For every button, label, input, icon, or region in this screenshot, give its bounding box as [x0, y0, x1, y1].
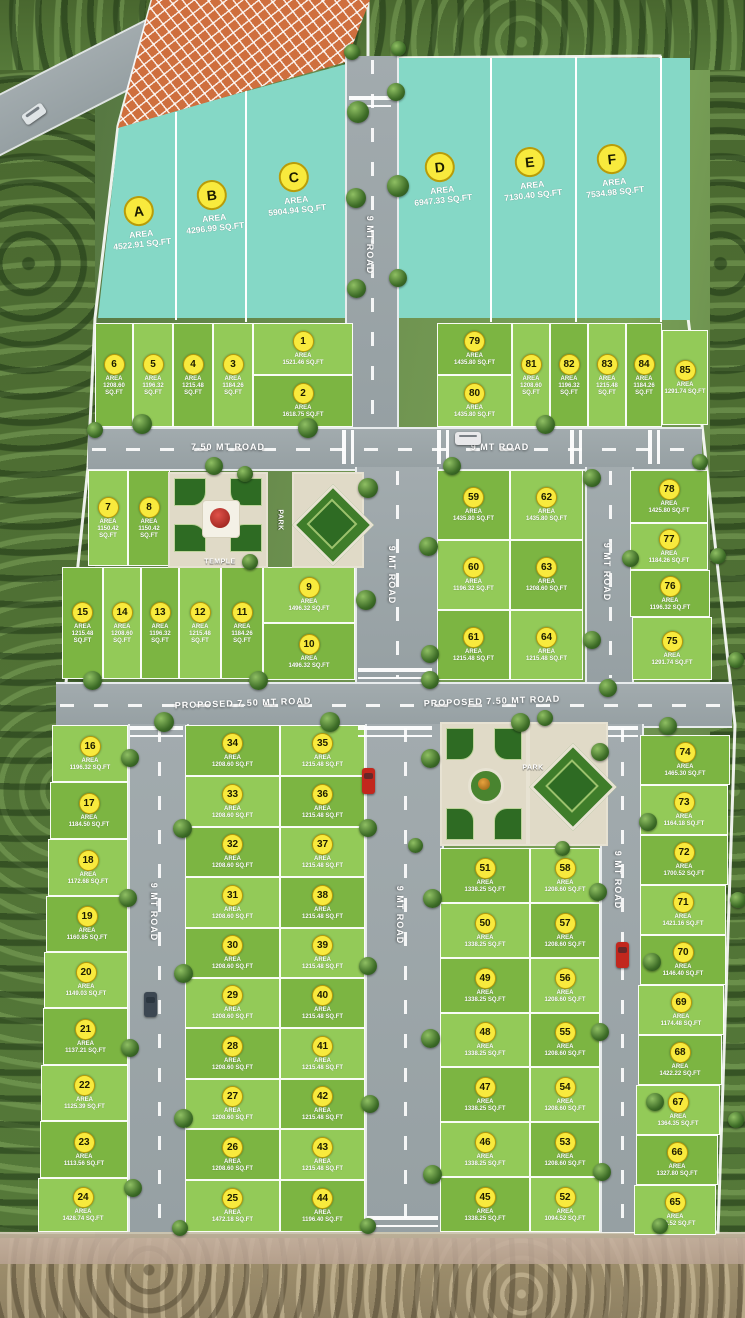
- plot-number-badge: 55: [555, 1022, 576, 1043]
- road-label-east-vertical-mid: 9 MT ROAD: [602, 543, 612, 602]
- plot-9: 9AREA1496.32 SQ.FT: [263, 567, 355, 623]
- zebra-crossing: [648, 430, 660, 464]
- plot-area-text: AREA1196.32 SQ.FT: [453, 579, 494, 593]
- plot-number-badge: 81: [521, 354, 542, 375]
- plot-number-badge: 59: [463, 487, 484, 508]
- plot-area-text: AREA1208.60 SQ.FT: [212, 856, 253, 870]
- road-centerline: [404, 728, 407, 1228]
- plot-76: 76AREA1196.32 SQ.FT: [630, 570, 710, 617]
- road-label-upper-horizontal-west: 7.50 MT ROAD: [191, 442, 265, 452]
- plot-1: 1AREA1521.46 SQ.FT: [253, 323, 353, 375]
- plot-33: 33AREA1208.60 SQ.FT: [185, 776, 280, 827]
- plot-area-text: AREA1208.60 SQ.FT: [212, 806, 253, 820]
- plot-38: 38AREA1215.48 SQ.FT: [280, 877, 365, 928]
- dirt-road-bottom: [0, 1232, 745, 1264]
- plot-area-text: AREA1137.21 SQ.FT: [65, 1041, 106, 1055]
- plot-number-badge: 84: [634, 354, 655, 375]
- plot-letter-badge: B: [195, 179, 228, 212]
- plot-area-text: AREA1291.74 SQ.FT: [651, 653, 692, 667]
- teal-plot-E: EAREA7130.40 SQ.FT: [483, 142, 578, 204]
- plot-number-badge: 65: [665, 1192, 686, 1213]
- plot-number-badge: 24: [73, 1187, 94, 1208]
- plot-area-text: AREA1435.80 SQ.FT: [454, 405, 495, 419]
- plot-34: 34AREA1208.60 SQ.FT: [185, 725, 280, 776]
- plot-68: 68AREA1422.22 SQ.FT: [638, 1035, 722, 1085]
- plot-number-badge: 79: [464, 331, 485, 352]
- tree-icon: [639, 813, 657, 831]
- plot-area-text: AREA1146.40 SQ.FT: [663, 964, 704, 978]
- plot-66: 66AREA1327.80 SQ.FT: [636, 1135, 718, 1185]
- plot-82: 82AREA1196.32 SQ.FT: [550, 323, 588, 427]
- temple-dome: [210, 508, 230, 528]
- plot-3: 3AREA1184.26 SQ.FT: [213, 323, 253, 427]
- plot-28: 28AREA1208.60 SQ.FT: [185, 1028, 280, 1079]
- plot-44: 44AREA1196.40 SQ.FT: [280, 1180, 365, 1232]
- plot-area-text: AREA1208.60 SQ.FT: [212, 907, 253, 921]
- plot-number-badge: 60: [463, 557, 484, 578]
- road-center-vertical-low: [365, 724, 444, 1232]
- plot-area-text: AREA1196.32 SQ.FT: [134, 376, 172, 397]
- plot-area-text: AREA1164.18 SQ.FT: [664, 814, 705, 828]
- plot-78: 78AREA1425.80 SQ.FT: [630, 470, 708, 523]
- plot-number-badge: 6: [104, 354, 125, 375]
- plot-area-text: AREA1215.48 SQ.FT: [302, 1058, 343, 1072]
- dark-car-west-road-icon: [144, 992, 157, 1017]
- plot-14: 14AREA1208.60 SQ.FT: [103, 567, 141, 679]
- tree-icon: [124, 1179, 142, 1197]
- tree-icon: [154, 712, 174, 732]
- tree-icon: [249, 671, 268, 690]
- tree-icon: [360, 1218, 376, 1234]
- plot-area-text: AREA1208.60 SQ.FT: [212, 1108, 253, 1122]
- plot-35: 35AREA1215.48 SQ.FT: [280, 725, 365, 776]
- tree-icon: [121, 1039, 139, 1057]
- plot-52: 52AREA1094.52 SQ.FT: [530, 1177, 600, 1232]
- tree-icon: [387, 83, 405, 101]
- plot-area-text: AREA1215.48 SQ.FT: [526, 649, 567, 663]
- plot-number-badge: 44: [312, 1188, 333, 1209]
- tree-icon: [361, 1095, 379, 1113]
- plot-51: 51AREA1338.25 SQ.FT: [440, 848, 530, 903]
- plot-area-text: AREA1208.60 SQ.FT: [544, 935, 585, 949]
- plot-number-badge: 12: [190, 602, 211, 623]
- plot-area-text: AREA1364.35 SQ.FT: [657, 1114, 698, 1128]
- plot-42: 42AREA1215.48 SQ.FT: [280, 1079, 365, 1129]
- plot-number-badge: 80: [464, 383, 485, 404]
- tree-icon: [358, 478, 378, 498]
- plot-area-text: AREA1208.60 SQ.FT: [544, 1099, 585, 1113]
- plot-number-badge: 20: [76, 962, 97, 983]
- plot-80: 80AREA1435.80 SQ.FT: [437, 375, 512, 427]
- plot-number-badge: 66: [667, 1142, 688, 1163]
- plot-area-text: AREA1208.60 SQ.FT: [544, 990, 585, 1004]
- plot-number-badge: 35: [312, 733, 333, 754]
- plot-letter-badge: E: [513, 146, 546, 179]
- plot-54: 54AREA1208.60 SQ.FT: [530, 1067, 600, 1122]
- plot-area-text: AREA1094.52 SQ.FT: [544, 1209, 585, 1223]
- plot-53: 53AREA1208.60 SQ.FT: [530, 1122, 600, 1177]
- plot-area-text: AREA1422.22 SQ.FT: [659, 1064, 700, 1078]
- zebra-crossing: [570, 430, 582, 464]
- tree-icon: [344, 44, 360, 60]
- lower-park-label: PARK: [522, 765, 543, 772]
- plot-area-text: AREA1125.39 SQ.FT: [64, 1097, 105, 1111]
- tree-icon: [172, 1220, 188, 1236]
- plot-area-text: AREA1215.48 SQ.FT: [302, 856, 343, 870]
- road-label-east-vertical-low: 9 MT ROAD: [613, 851, 623, 910]
- plot-13: 13AREA1196.32 SQ.FT: [141, 567, 179, 679]
- tree-icon: [173, 819, 192, 838]
- plot-72: 72AREA1700.52 SQ.FT: [640, 835, 728, 885]
- tree-icon: [583, 469, 601, 487]
- road-centerline: [60, 704, 728, 707]
- plot-area-text: AREA1700.52 SQ.FT: [663, 864, 704, 878]
- plot-number-badge: 15: [72, 602, 93, 623]
- plot-number-badge: 11: [232, 602, 253, 623]
- plot-number-badge: 71: [673, 892, 694, 913]
- tree-icon: [728, 1112, 744, 1128]
- tree-icon: [423, 889, 442, 908]
- plot-75: 75AREA1291.74 SQ.FT: [632, 617, 712, 680]
- plot-area-text: AREA1215.48 SQ.FT: [302, 1108, 343, 1122]
- plot-20: 20AREA1149.03 SQ.FT: [44, 952, 128, 1008]
- tree-icon: [599, 679, 617, 697]
- plot-71: 71AREA1421.16 SQ.FT: [640, 885, 726, 935]
- plot-area-text: AREA1208.60 SQ.FT: [212, 1058, 253, 1072]
- tree-icon: [87, 422, 103, 438]
- plot-number-badge: 21: [75, 1019, 96, 1040]
- plot-number-badge: 17: [79, 793, 100, 814]
- plot-number-badge: 36: [312, 784, 333, 805]
- plot-77: 77AREA1184.26 SQ.FT: [630, 523, 708, 570]
- tree-icon: [421, 671, 439, 689]
- plot-84: 84AREA1184.26 SQ.FT: [626, 323, 662, 427]
- plot-area-text: AREA1149.03 SQ.FT: [66, 984, 107, 998]
- plot-number-badge: 85: [675, 360, 696, 381]
- plot-area-text: AREA1338.25 SQ.FT: [464, 990, 505, 1004]
- tree-icon: [298, 418, 318, 438]
- plot-number-badge: 32: [222, 834, 243, 855]
- plot-number-badge: 58: [555, 858, 576, 879]
- plot-area-text: AREA1208.60 SQ.FT: [212, 957, 253, 971]
- tree-icon: [591, 1023, 609, 1041]
- plot-area-text: AREA1618.75 SQ.FT: [282, 405, 323, 419]
- plot-number-badge: 51: [475, 858, 496, 879]
- tree-icon: [391, 41, 406, 56]
- tree-icon: [83, 671, 102, 690]
- tree-icon: [347, 101, 369, 123]
- plot-area-text: AREA1435.80 SQ.FT: [454, 353, 495, 367]
- plot-11: 11AREA1184.26 SQ.FT: [221, 567, 263, 679]
- plot-64: 64AREA1215.48 SQ.FT: [510, 610, 583, 680]
- tree-icon: [419, 537, 438, 556]
- tree-icon: [421, 749, 440, 768]
- plot-number-badge: 23: [74, 1132, 95, 1153]
- plot-27: 27AREA1208.60 SQ.FT: [185, 1079, 280, 1129]
- plot-area-text: AREA1338.25 SQ.FT: [464, 935, 505, 949]
- tree-icon: [121, 749, 139, 767]
- plot-number-badge: 2: [293, 383, 314, 404]
- white-truck-icon: [455, 432, 481, 445]
- plot-number-badge: 61: [463, 627, 484, 648]
- tree-icon: [593, 1163, 611, 1181]
- plot-area-text: AREA1421.16 SQ.FT: [662, 914, 703, 928]
- plot-8: 8AREA1150.42 SQ.FT: [128, 470, 170, 566]
- plot-48: 48AREA1338.25 SQ.FT: [440, 1013, 530, 1067]
- tree-icon: [643, 953, 661, 971]
- plot-10: 10AREA1496.32 SQ.FT: [263, 623, 355, 680]
- plot-area-text: AREA1160.85 SQ.FT: [67, 928, 108, 942]
- plot-number-badge: 69: [671, 992, 692, 1013]
- plot-59: 59AREA1435.80 SQ.FT: [437, 470, 510, 540]
- plot-area-text: AREA1208.60 SQ.FT: [212, 1007, 253, 1021]
- plot-area-text: AREA1208.60 SQ.FT: [544, 1044, 585, 1058]
- tree-icon: [622, 550, 639, 567]
- plot-area-text: AREA1435.80 SQ.FT: [453, 509, 494, 523]
- plot-36: 36AREA1215.48 SQ.FT: [280, 776, 365, 827]
- plot-area-text: AREA1496.32 SQ.FT: [288, 656, 329, 670]
- plot-layout-map: AAREA4522.91 SQ.FTBAREA4296.99 SQ.FTCARE…: [0, 0, 745, 1318]
- plot-letter-badge: D: [423, 151, 456, 184]
- plot-7: 7AREA1150.42 SQ.FT: [88, 470, 128, 566]
- tree-icon: [659, 717, 677, 735]
- teal-plot-D: DAREA6947.33 SQ.FT: [393, 147, 488, 209]
- plot-number-badge: 25: [222, 1188, 243, 1209]
- upper-park-label: PARK: [277, 509, 284, 530]
- plot-number-badge: 29: [222, 985, 243, 1006]
- plot-number-badge: 5: [143, 354, 164, 375]
- plot-69: 69AREA1174.48 SQ.FT: [638, 985, 724, 1035]
- plot-area-text: AREA1174.48 SQ.FT: [661, 1014, 702, 1028]
- plot-number-badge: 10: [299, 634, 320, 655]
- plot-area-text: AREA1208.60 SQ.FT: [104, 624, 140, 645]
- plot-area-text: AREA1208.60 SQ.FT: [544, 1154, 585, 1168]
- plot-number-badge: 52: [555, 1187, 576, 1208]
- plot-12: 12AREA1215.48 SQ.FT: [179, 567, 221, 679]
- plot-area-text: AREA1215.48 SQ.FT: [63, 624, 102, 645]
- lower-park-circle-garden: [440, 722, 528, 846]
- plot-number-badge: 40: [312, 985, 333, 1006]
- plot-number-badge: 16: [80, 736, 101, 757]
- tree-icon: [359, 819, 377, 837]
- plot-47: 47AREA1338.25 SQ.FT: [440, 1067, 530, 1122]
- plot-45: 45AREA1338.25 SQ.FT: [440, 1177, 530, 1232]
- zebra-crossing: [358, 726, 432, 737]
- plot-area-text: AREA1184.26 SQ.FT: [649, 551, 690, 565]
- plot-area-text: AREA1208.60 SQ.FT: [212, 1159, 253, 1173]
- teal-plot-C: CAREA5904.94 SQ.FT: [247, 157, 342, 219]
- tree-icon: [356, 590, 376, 610]
- tree-icon: [591, 743, 609, 761]
- plot-67: 67AREA1364.35 SQ.FT: [636, 1085, 720, 1135]
- tree-icon: [242, 554, 258, 570]
- tree-icon: [205, 457, 223, 475]
- plot-number-badge: 54: [555, 1077, 576, 1098]
- tree-icon: [132, 414, 152, 434]
- plot-74: 74AREA1465.30 SQ.FT: [640, 735, 730, 785]
- plot-number-badge: 41: [312, 1036, 333, 1057]
- plot-60: 60AREA1196.32 SQ.FT: [437, 540, 510, 610]
- road-label-center-vertical-mid: 9 MT ROAD: [387, 546, 397, 605]
- teal-plot-F: FAREA7534.98 SQ.FT: [565, 139, 660, 201]
- plot-number-badge: 64: [536, 627, 557, 648]
- plot-area-text: AREA1338.25 SQ.FT: [464, 880, 505, 894]
- plot-number-badge: 7: [98, 497, 119, 518]
- plot-number-badge: 75: [662, 631, 683, 652]
- plot-letter-badge: A: [122, 195, 155, 228]
- tree-icon: [728, 652, 744, 668]
- plot-number-badge: 3: [223, 354, 244, 375]
- plot-area-text: AREA1465.30 SQ.FT: [664, 764, 705, 778]
- plot-area-text: AREA1172.68 SQ.FT: [68, 872, 109, 886]
- plot-area-text: AREA1338.25 SQ.FT: [464, 1099, 505, 1113]
- plot-41: 41AREA1215.48 SQ.FT: [280, 1028, 365, 1079]
- upper-park: [292, 472, 364, 568]
- plot-62: 62AREA1435.80 SQ.FT: [510, 470, 583, 540]
- plot-number-badge: 82: [559, 354, 580, 375]
- plot-area-text: AREA1208.60 SQ.FT: [96, 376, 132, 397]
- tree-icon: [511, 713, 530, 732]
- road-label-west-vertical-low: 9 MT ROAD: [149, 883, 159, 942]
- plot-number-badge: 42: [312, 1086, 333, 1107]
- plot-61: 61AREA1215.48 SQ.FT: [437, 610, 510, 680]
- tree-icon: [387, 175, 409, 197]
- plot-number-badge: 78: [659, 479, 680, 500]
- plot-area-text: AREA1215.48 SQ.FT: [453, 649, 494, 663]
- plot-25: 25AREA1472.18 SQ.FT: [185, 1180, 280, 1232]
- plot-area-text: AREA1428.74 SQ.FT: [62, 1209, 103, 1223]
- plot-area-text: AREA1496.32 SQ.FT: [288, 599, 329, 613]
- plot-57: 57AREA1208.60 SQ.FT: [530, 903, 600, 958]
- plot-16: 16AREA1196.32 SQ.FT: [52, 725, 128, 782]
- tree-icon: [320, 712, 340, 732]
- tree-icon: [589, 883, 607, 901]
- plot-18: 18AREA1172.68 SQ.FT: [48, 839, 128, 896]
- tree-icon: [347, 279, 366, 298]
- road-label-center-vertical-low: 9 MT ROAD: [395, 886, 405, 945]
- plot-number-badge: 83: [597, 354, 618, 375]
- plot-area-text: AREA1208.60 SQ.FT: [526, 579, 567, 593]
- plot-number-badge: 30: [222, 935, 243, 956]
- plot-15: 15AREA1215.48 SQ.FT: [62, 567, 103, 679]
- plot-5: 5AREA1196.32 SQ.FT: [133, 323, 173, 427]
- plot-number-badge: 33: [222, 784, 243, 805]
- plot-number-badge: 47: [475, 1077, 496, 1098]
- plot-79: 79AREA1435.80 SQ.FT: [437, 323, 512, 375]
- plot-26: 26AREA1208.60 SQ.FT: [185, 1129, 280, 1180]
- tree-icon: [421, 645, 439, 663]
- plot-number-badge: 50: [475, 913, 496, 934]
- plot-area-text: AREA1215.48 SQ.FT: [302, 907, 343, 921]
- plot-area-text: AREA1113.56 SQ.FT: [64, 1154, 104, 1168]
- plot-83: 83AREA1215.48 SQ.FT: [588, 323, 626, 427]
- plot-area-text: AREA1338.25 SQ.FT: [464, 1044, 505, 1058]
- plot-area-text: AREA1215.48 SQ.FT: [174, 376, 212, 397]
- plot-37: 37AREA1215.48 SQ.FT: [280, 827, 365, 877]
- tree-icon: [421, 1029, 440, 1048]
- plot-area-text: AREA1435.80 SQ.FT: [526, 509, 567, 523]
- red-car-east-road-icon: [616, 942, 629, 968]
- plot-32: 32AREA1208.60 SQ.FT: [185, 827, 280, 877]
- teal-plot-B: BAREA4296.99 SQ.FT: [165, 175, 260, 237]
- plot-24: 24AREA1428.74 SQ.FT: [38, 1178, 128, 1232]
- road-centerline: [621, 728, 624, 1228]
- plot-area-text: AREA1215.48 SQ.FT: [180, 624, 220, 645]
- plot-81: 81AREA1208.60 SQ.FT: [512, 323, 550, 427]
- plot-46: 46AREA1338.25 SQ.FT: [440, 1122, 530, 1177]
- red-car-center-road-icon: [362, 768, 375, 794]
- lower-park-diamond-garden: [528, 722, 608, 846]
- plot-number-badge: 4: [183, 354, 204, 375]
- plot-number-badge: 68: [670, 1042, 691, 1063]
- plot-number-badge: 77: [659, 529, 680, 550]
- plot-area-text: AREA1327.80 SQ.FT: [656, 1164, 697, 1178]
- plot-number-badge: 74: [675, 742, 696, 763]
- plot-number-badge: 34: [222, 733, 243, 754]
- plot-4: 4AREA1215.48 SQ.FT: [173, 323, 213, 427]
- plot-31: 31AREA1208.60 SQ.FT: [185, 877, 280, 928]
- tree-icon: [174, 1109, 193, 1128]
- plot-area-text: AREA1196.32 SQ.FT: [70, 758, 111, 772]
- plot-17: 17AREA1184.50 SQ.FT: [50, 782, 128, 839]
- tree-icon: [174, 964, 193, 983]
- plot-area-text: AREA1215.48 SQ.FT: [302, 1159, 343, 1173]
- plot-number-badge: 39: [312, 935, 333, 956]
- tree-icon: [583, 631, 601, 649]
- tree-icon: [730, 892, 745, 908]
- plot-area-text: AREA1215.48 SQ.FT: [302, 755, 343, 769]
- plot-number-badge: 72: [674, 842, 695, 863]
- plot-number-badge: 46: [475, 1132, 496, 1153]
- plot-area-text: AREA1184.26 SQ.FT: [214, 376, 252, 397]
- plot-area-text: AREA1150.42 SQ.FT: [129, 519, 169, 540]
- plot-area-text: AREA1338.25 SQ.FT: [464, 1209, 505, 1223]
- plot-40: 40AREA1215.48 SQ.FT: [280, 978, 365, 1028]
- plot-49: 49AREA1338.25 SQ.FT: [440, 958, 530, 1013]
- plot-55: 55AREA1208.60 SQ.FT: [530, 1013, 600, 1067]
- teal-plot-f-extension: [660, 58, 690, 320]
- plot-area-text: AREA1521.46 SQ.FT: [282, 353, 323, 367]
- plot-area-text: AREA1196.32 SQ.FT: [551, 376, 587, 397]
- plot-area-text: AREA1196.32 SQ.FT: [650, 598, 691, 612]
- tree-icon: [423, 1165, 442, 1184]
- road-upper-horizontal-west: [88, 427, 702, 471]
- plot-50: 50AREA1338.25 SQ.FT: [440, 903, 530, 958]
- plot-29: 29AREA1208.60 SQ.FT: [185, 978, 280, 1028]
- plot-area-text: AREA1184.26 SQ.FT: [627, 376, 661, 397]
- temple-label: TEMPLE: [204, 559, 235, 566]
- tree-icon: [359, 957, 377, 975]
- plot-number-badge: 26: [222, 1137, 243, 1158]
- plot-number-badge: 62: [536, 487, 557, 508]
- plot-number-badge: 37: [312, 834, 333, 855]
- plot-area-text: AREA1215.48 SQ.FT: [589, 376, 625, 397]
- plot-area-text: AREA1196.40 SQ.FT: [302, 1210, 343, 1224]
- plot-letter-badge: F: [595, 143, 628, 176]
- plot-number-badge: 76: [660, 576, 681, 597]
- plot-number-badge: 13: [150, 602, 171, 623]
- plot-21: 21AREA1137.21 SQ.FT: [43, 1008, 128, 1065]
- plot-23: 23AREA1113.56 SQ.FT: [40, 1121, 128, 1178]
- plot-56: 56AREA1208.60 SQ.FT: [530, 958, 600, 1013]
- plot-number-badge: 8: [139, 497, 160, 518]
- road-centerline: [158, 728, 161, 1228]
- plot-number-badge: 38: [312, 885, 333, 906]
- plot-30: 30AREA1208.60 SQ.FT: [185, 928, 280, 978]
- plot-number-badge: 9: [299, 577, 320, 598]
- zebra-crossing: [342, 430, 354, 464]
- plot-65: 65AREA1312.52 SQ.FT: [634, 1185, 716, 1235]
